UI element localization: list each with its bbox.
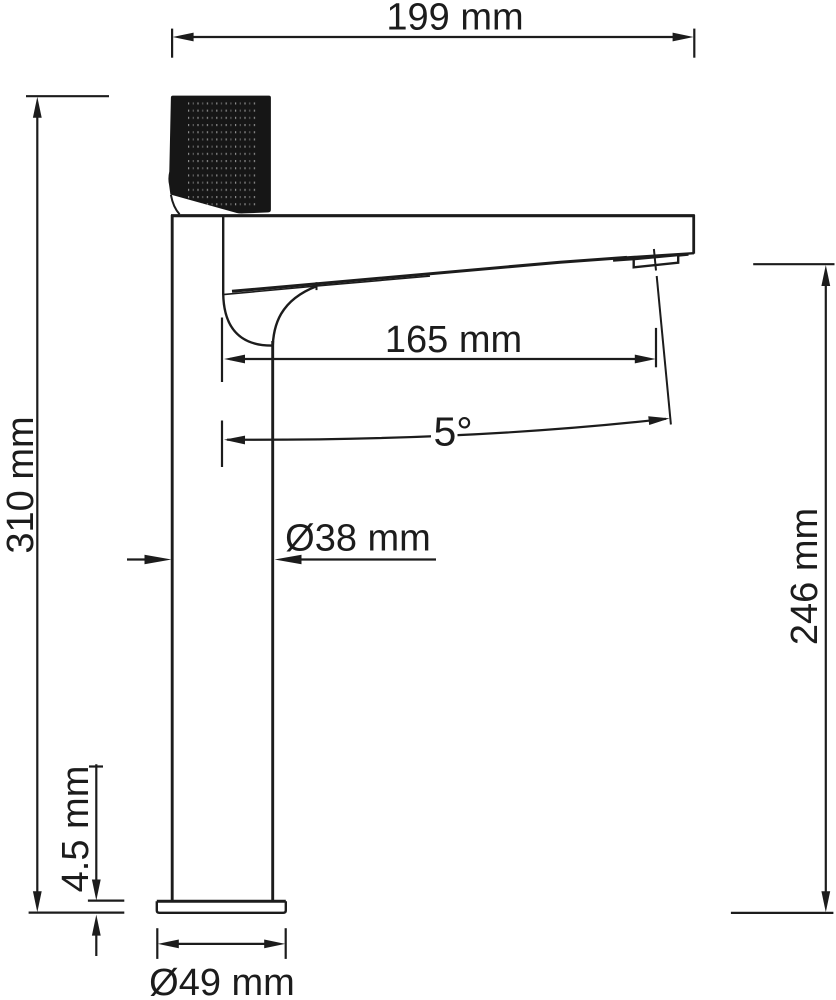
- svg-text:Ø38 mm: Ø38 mm: [285, 518, 431, 560]
- svg-text:Ø49 mm: Ø49 mm: [149, 962, 295, 1000]
- svg-text:310 mm: 310 mm: [0, 416, 42, 553]
- svg-text:4.5 mm: 4.5 mm: [55, 766, 97, 893]
- svg-text:199 mm: 199 mm: [386, 0, 523, 39]
- svg-text:5°: 5°: [434, 409, 473, 455]
- svg-text:165 mm: 165 mm: [385, 319, 522, 361]
- svg-text:246 mm: 246 mm: [784, 508, 826, 645]
